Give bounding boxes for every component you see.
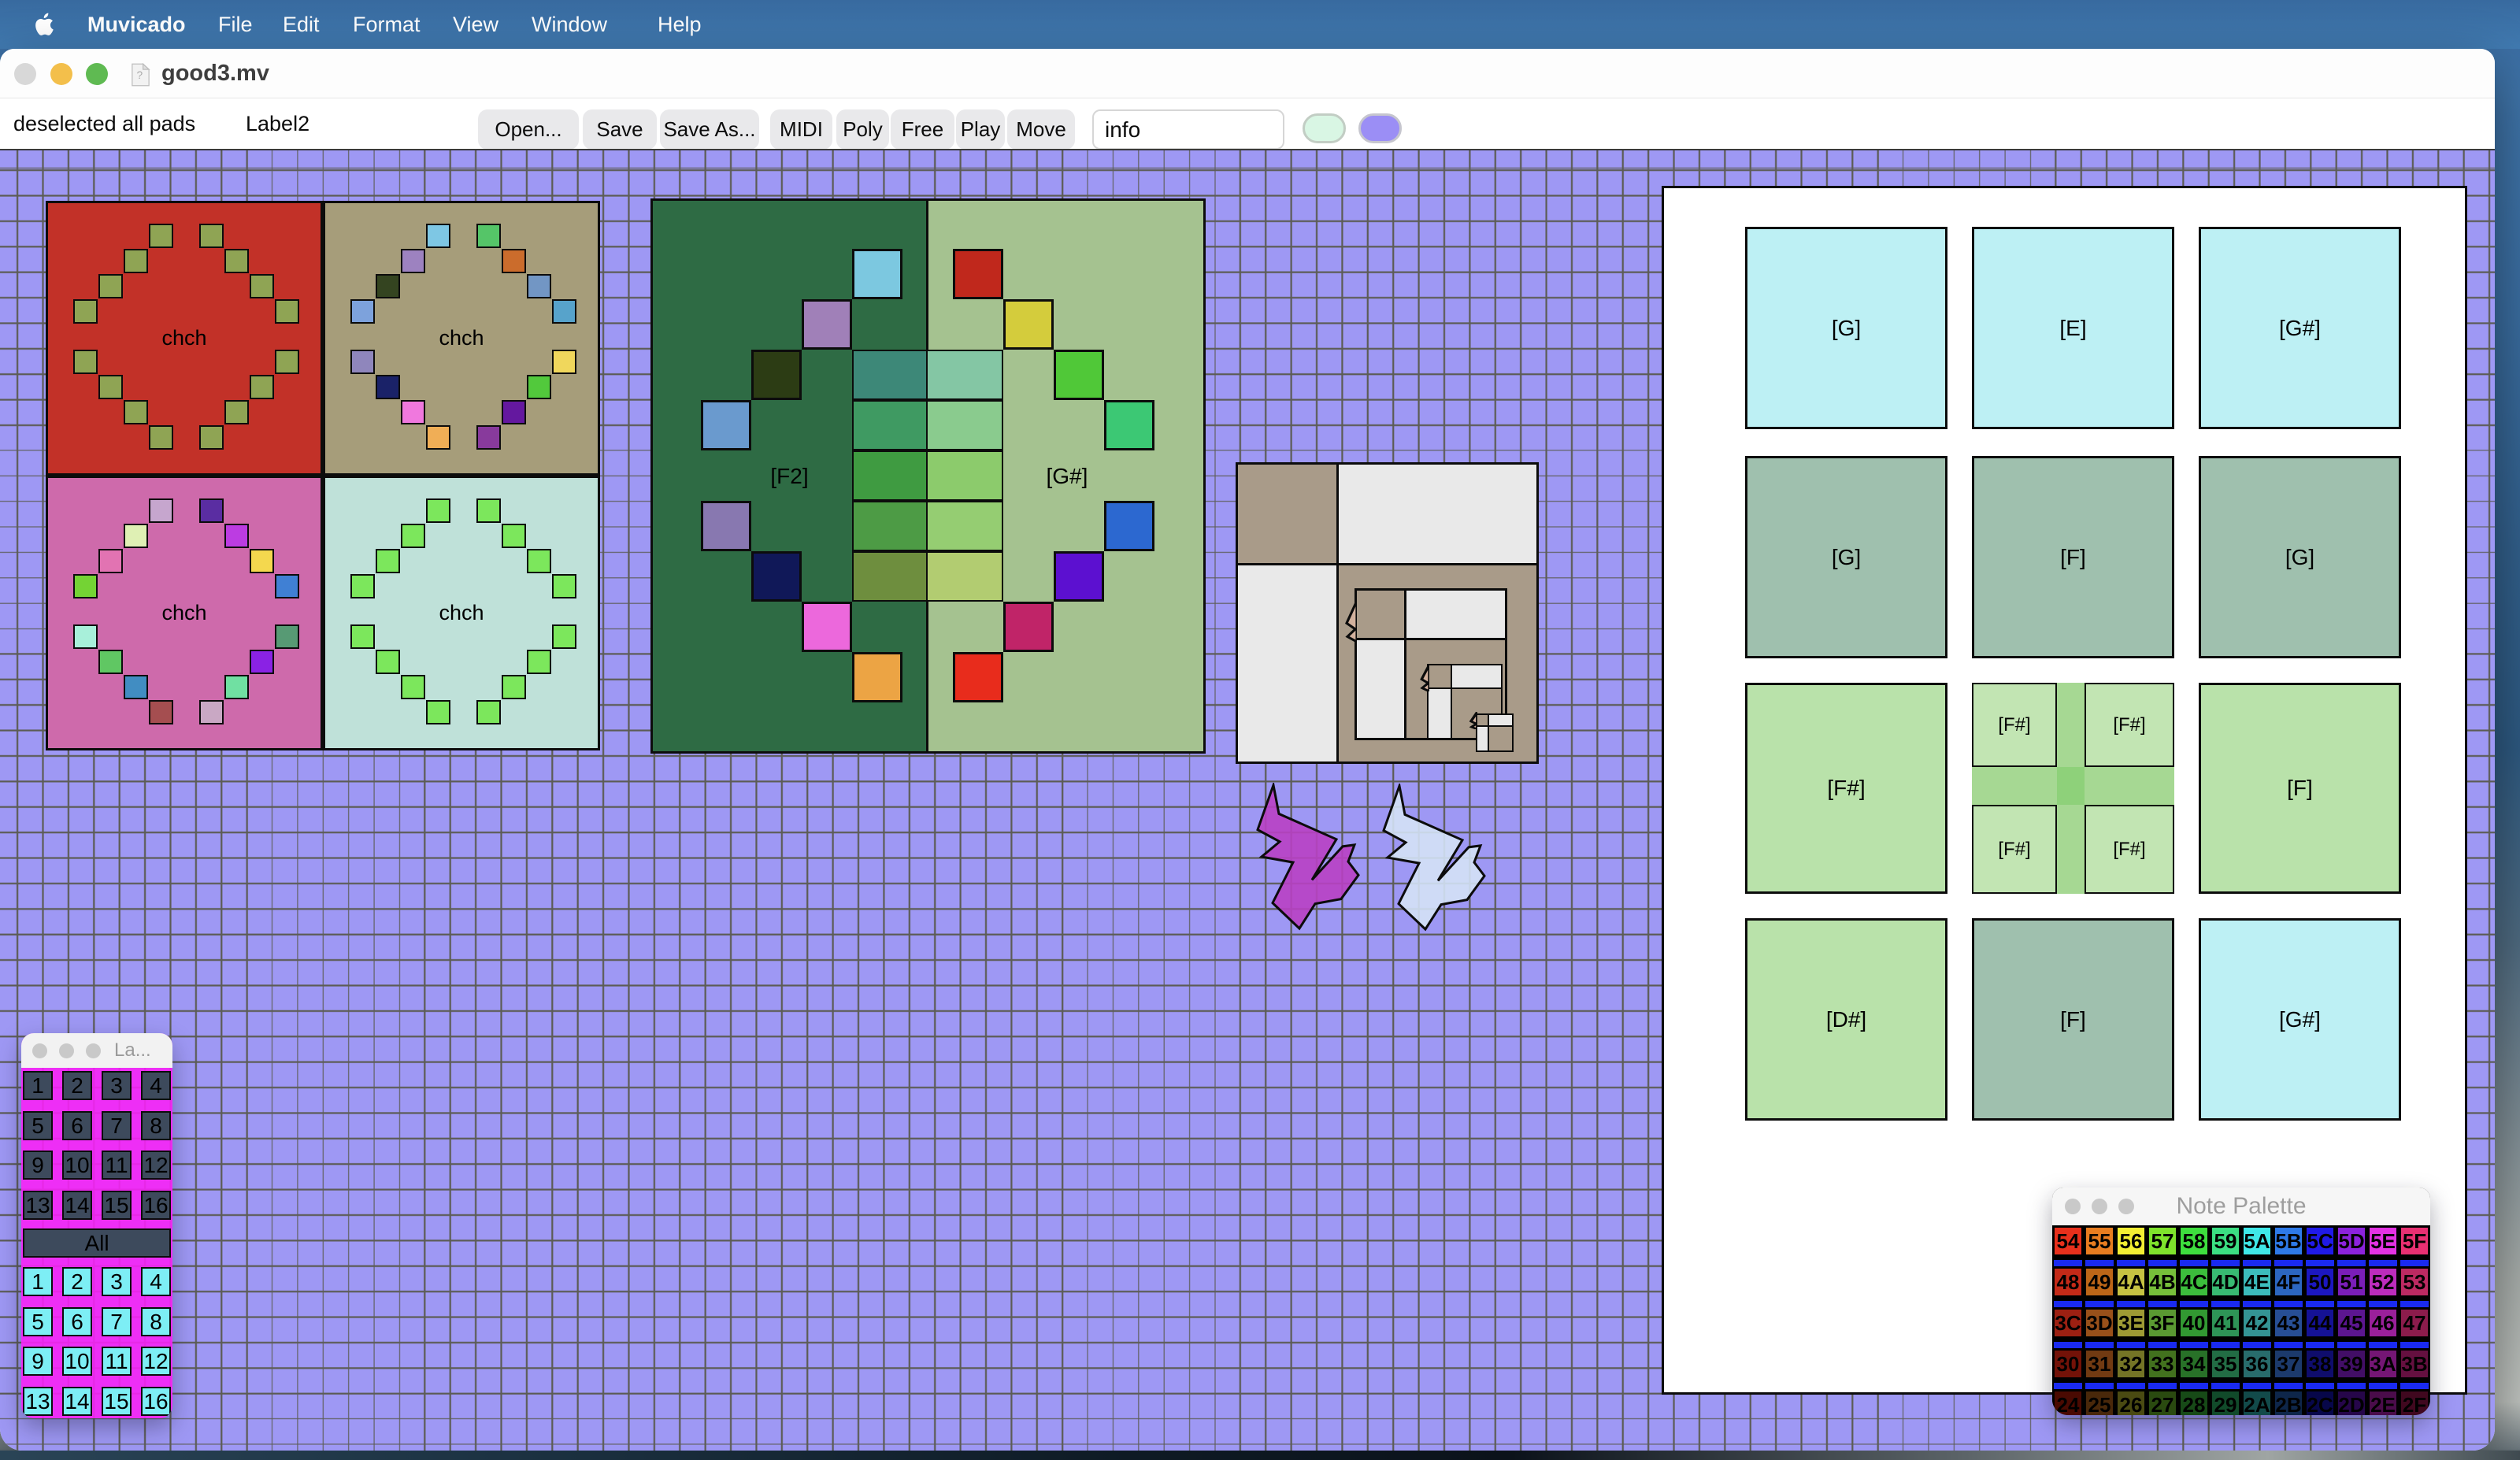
svg-text:?: ? [137, 69, 143, 81]
